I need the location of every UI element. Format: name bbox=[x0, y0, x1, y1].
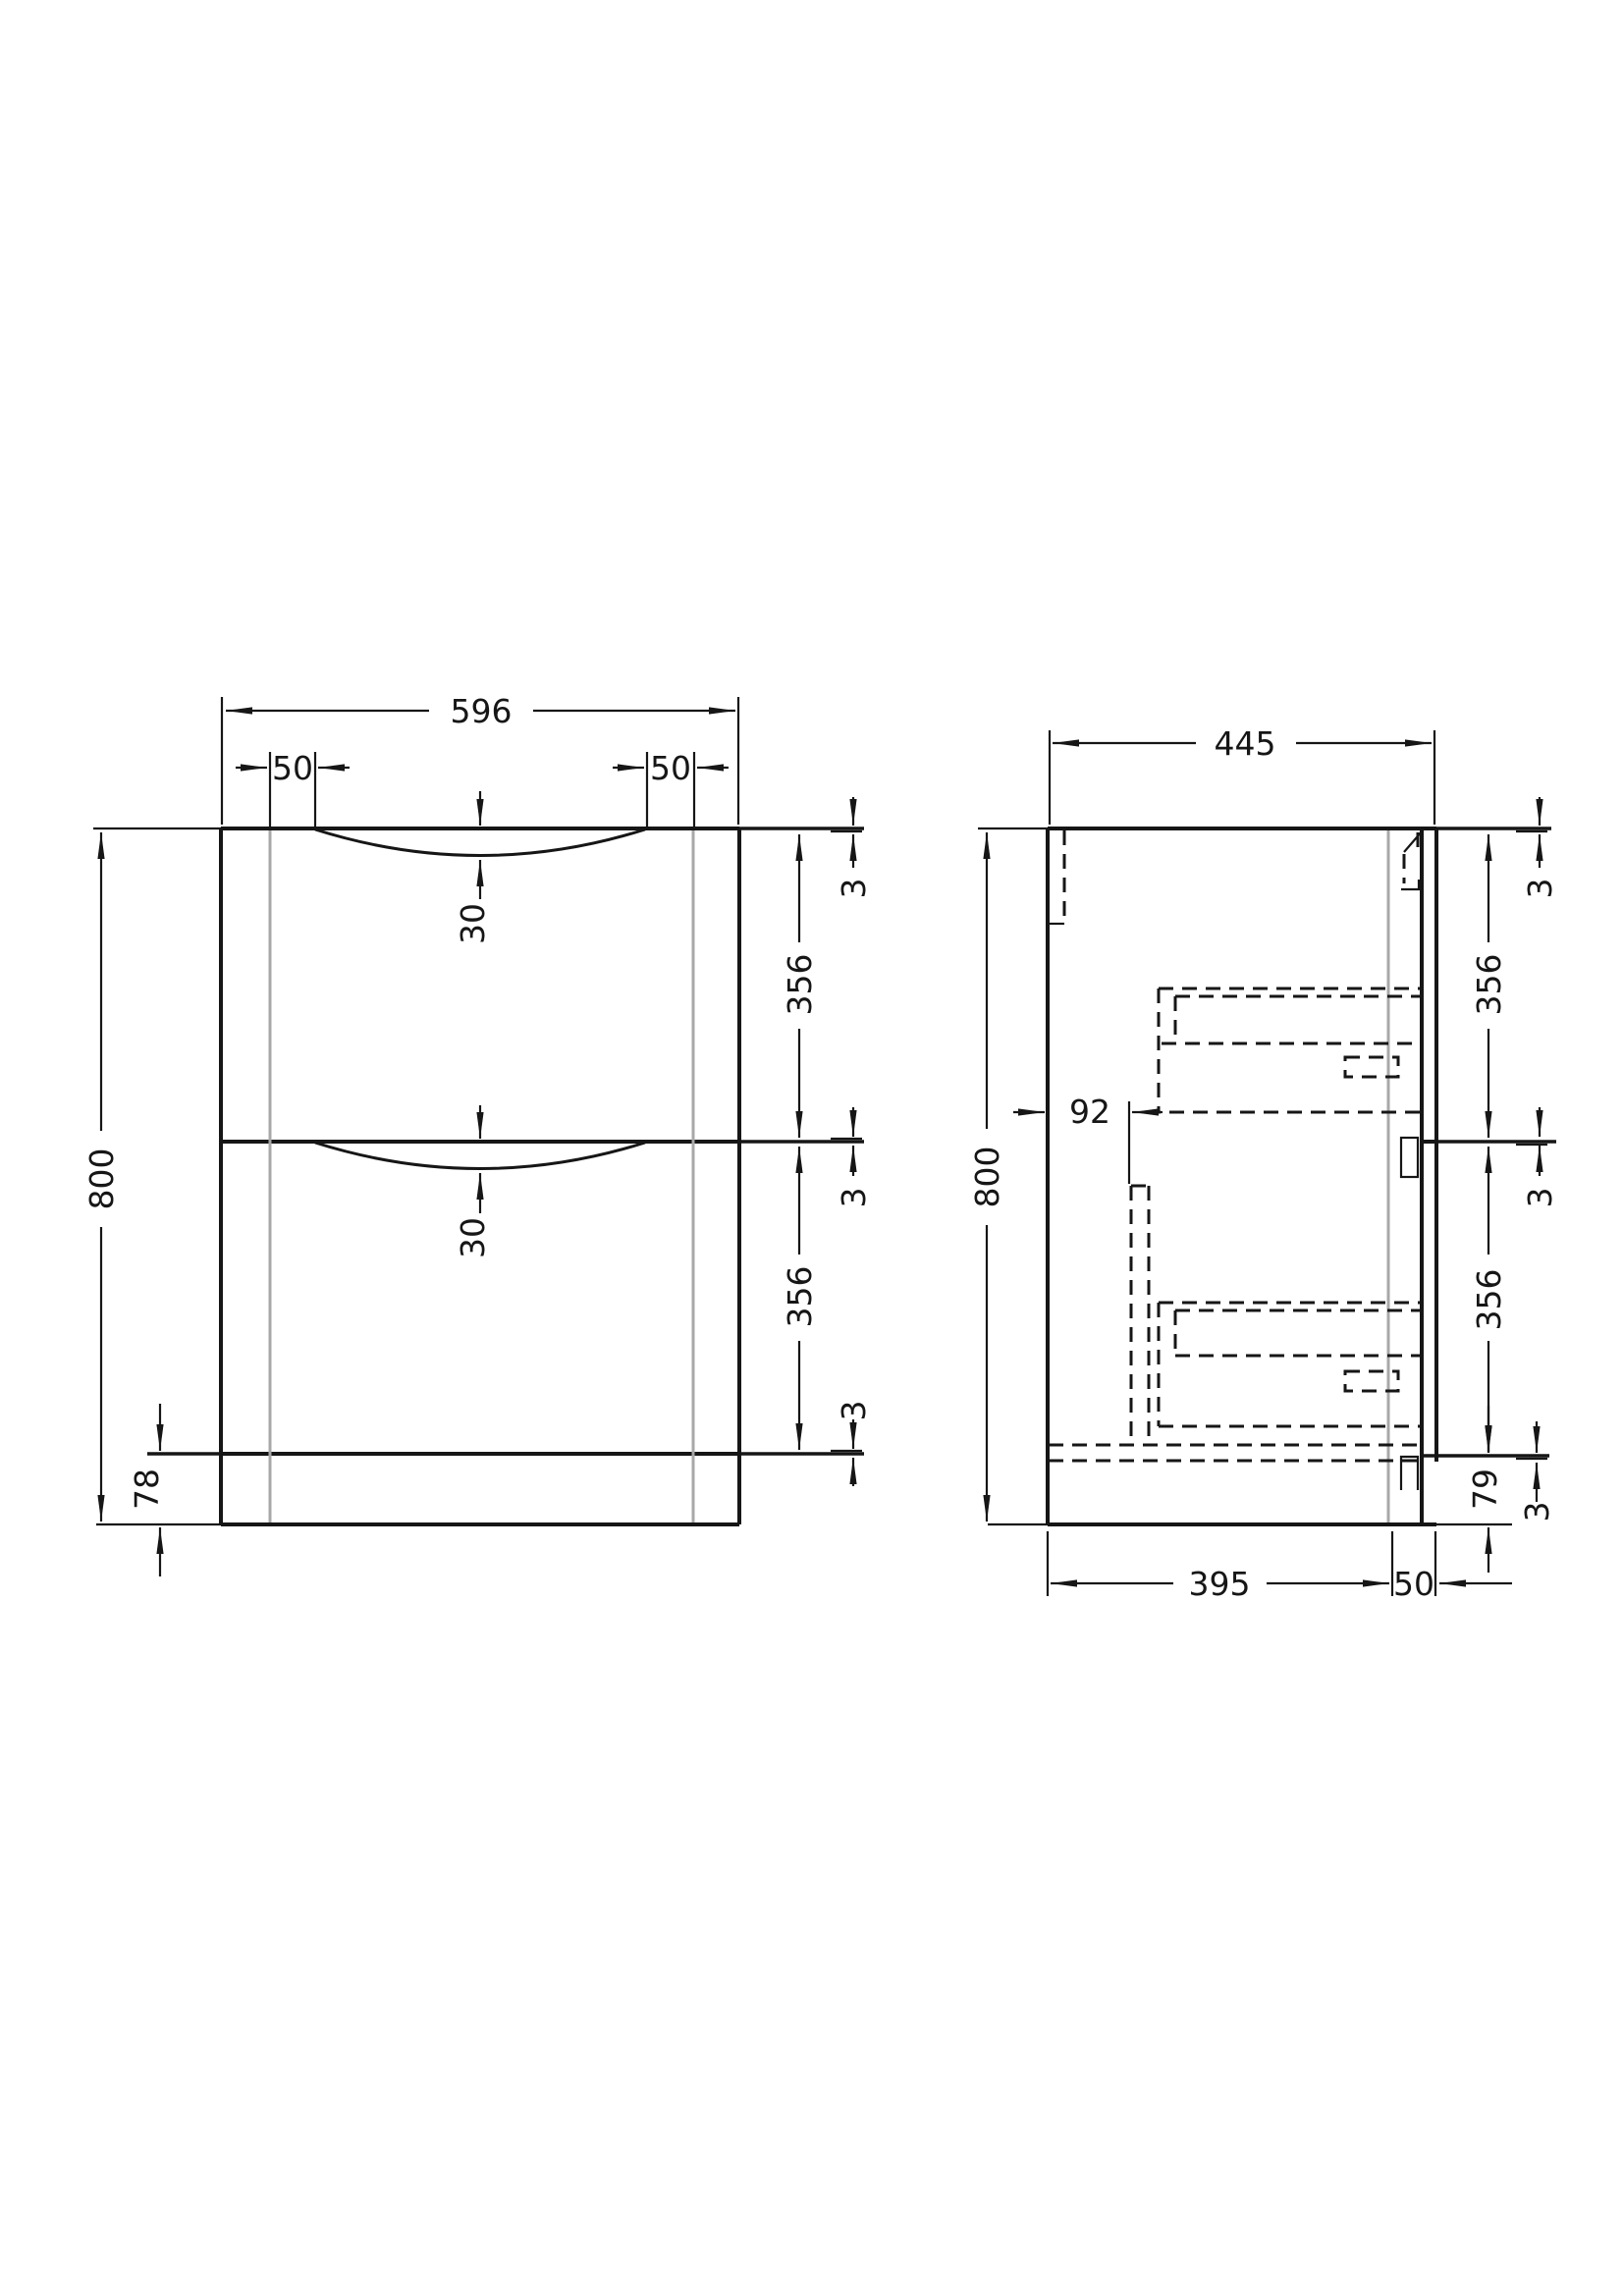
dim-label-gap-top: 3 bbox=[835, 879, 873, 899]
dim-label-base-depth: 395 bbox=[1189, 1565, 1251, 1603]
handle-section-middle bbox=[1401, 1138, 1418, 1177]
side-extension-lines bbox=[978, 828, 1556, 1524]
dim-label-gap-middle: 3 bbox=[1521, 1188, 1559, 1208]
dim-label-plinth: 78 bbox=[128, 1468, 166, 1510]
dim-label-inset-left: 50 bbox=[272, 749, 313, 787]
cad-drawing: 596 50 50 30 30 bbox=[0, 0, 1623, 2296]
dim-side-overall-depth: 445 bbox=[1050, 724, 1434, 825]
dim-label-gap-bottom: 3 bbox=[835, 1401, 873, 1421]
side-outline bbox=[1048, 828, 1436, 1524]
dim-side-back-offset: 92 bbox=[1013, 1093, 1163, 1184]
dim-handle-recess-bottom: 30 bbox=[454, 1105, 492, 1258]
dim-label-side-height: 800 bbox=[968, 1147, 1006, 1208]
dim-side-overall-height: 800 bbox=[968, 832, 1006, 1522]
top-drawer-handle-curve bbox=[315, 829, 645, 856]
dim-label-recess-top: 30 bbox=[454, 903, 492, 944]
bottom-drawer-handle-curve bbox=[315, 1143, 645, 1169]
dim-front-plinth: 78 bbox=[128, 1404, 166, 1576]
dim-handle-recess-top: 30 bbox=[454, 791, 492, 944]
dim-label-drawer-bottom: 356 bbox=[1470, 1269, 1508, 1331]
dim-label-back-offset: 92 bbox=[1069, 1093, 1110, 1131]
dim-label-drawer-top: 356 bbox=[1470, 954, 1508, 1016]
dim-label-gap-top: 3 bbox=[1521, 879, 1559, 899]
dim-label-drawer-bottom: 356 bbox=[781, 1266, 819, 1328]
dim-label-depth: 445 bbox=[1215, 724, 1276, 763]
dim-label-recess-bottom: 30 bbox=[454, 1217, 492, 1258]
dim-label-front-height: 800 bbox=[82, 1148, 121, 1210]
drawer2-slide bbox=[1345, 1371, 1398, 1391]
side-hidden-detail bbox=[1049, 830, 1423, 1461]
front-elevation-view: 596 50 50 30 30 bbox=[82, 692, 873, 1576]
dim-front-handle-inset-left: 50 bbox=[236, 749, 350, 827]
dim-label-gap-bottom: 3 bbox=[1518, 1502, 1556, 1522]
dim-label-inset-right: 50 bbox=[650, 749, 691, 787]
drawing-sheet: 596 50 50 30 30 bbox=[0, 0, 1623, 2296]
dim-side-bottom: 395 50 bbox=[1048, 1531, 1512, 1603]
drawer1-slide bbox=[1345, 1057, 1398, 1077]
dim-front-overall-height: 800 bbox=[82, 832, 121, 1522]
dim-label-gap-middle: 3 bbox=[835, 1188, 873, 1208]
dim-front-handle-inset-right: 50 bbox=[613, 749, 729, 827]
dim-label-overall-width: 596 bbox=[451, 692, 513, 730]
dim-label-drawer-top: 356 bbox=[781, 954, 819, 1016]
side-section-view: 445 800 92 3 356 3 356 bbox=[968, 724, 1559, 1603]
dim-label-toe-recess: 50 bbox=[1393, 1565, 1434, 1603]
dim-label-plinth: 79 bbox=[1466, 1468, 1504, 1510]
side-handle-sections bbox=[1401, 1138, 1418, 1490]
